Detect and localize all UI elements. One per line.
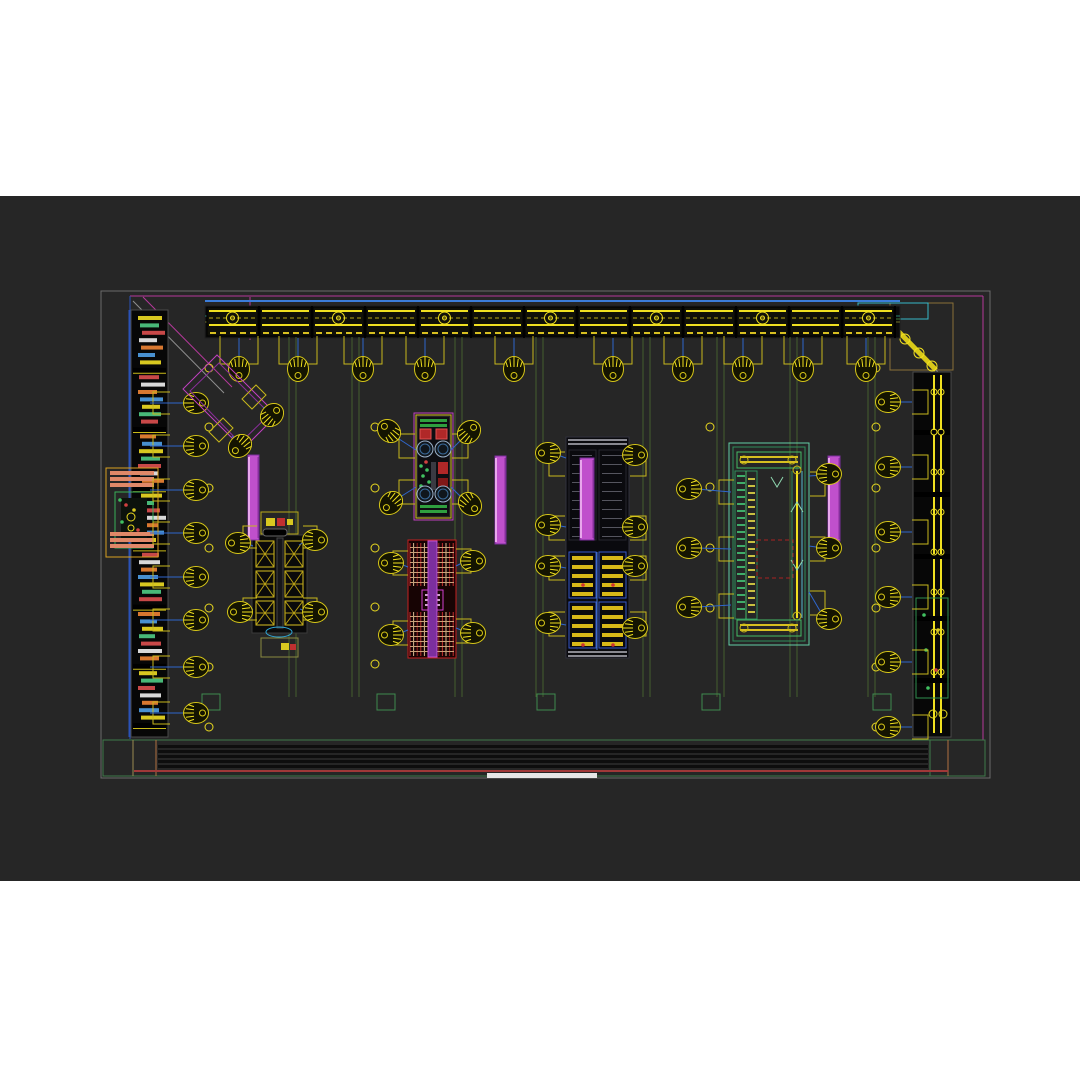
- shelf-bay: [538, 332, 544, 334]
- table: [417, 486, 433, 502]
- shelf-merchandise: [141, 383, 165, 387]
- shelf-bay: [409, 332, 415, 334]
- shelf-merchandise: [139, 597, 162, 601]
- spotlight-fixture: [184, 480, 209, 501]
- shelf-bay: [528, 332, 534, 334]
- spotlight-fixture: [817, 464, 842, 485]
- island-stock: [748, 527, 755, 529]
- shelf-bay: [250, 332, 256, 334]
- spotlight-fixture: [623, 517, 648, 538]
- shelf-bay: [621, 332, 627, 334]
- shelf-bay: [846, 332, 852, 334]
- island-stock: [748, 611, 755, 613]
- display-detail: [277, 518, 285, 526]
- shelf-merchandise: [140, 693, 161, 697]
- spotlight-fixture: [623, 618, 648, 639]
- entrance-mat: [158, 755, 928, 758]
- shelf-merchandise: [142, 590, 161, 594]
- shelf-bay: [263, 332, 269, 334]
- island-stock: [748, 569, 755, 571]
- island-stock: [737, 482, 745, 484]
- island-stock: [748, 478, 755, 480]
- spotlight-fixture: [677, 538, 702, 559]
- entrance-mat: [158, 750, 928, 753]
- shelf-bay: [581, 332, 587, 334]
- display-chips: [110, 477, 154, 481]
- shelf-merchandise: [142, 442, 162, 446]
- shelf-merchandise: [140, 323, 159, 327]
- shelf-merchandise: [138, 464, 161, 468]
- gondola-shelf-line: [602, 518, 622, 519]
- island-stock: [737, 517, 745, 519]
- island-stock: [737, 552, 745, 554]
- spotlight-fixture: [415, 357, 436, 382]
- display-detail: [581, 583, 585, 587]
- shelf-bay: [462, 332, 468, 334]
- display-chips: [110, 538, 154, 542]
- shelf-merchandise: [138, 612, 160, 616]
- spotlight-fixture: [876, 457, 901, 478]
- screenshot-page: [0, 0, 1080, 1080]
- island-stock: [737, 608, 745, 610]
- shelf-merchandise: [133, 427, 166, 432]
- shelf-bay: [654, 332, 660, 334]
- gondola-stock: [602, 615, 623, 619]
- spotlight-fixture: [303, 602, 328, 623]
- shelf-bay: [389, 332, 395, 334]
- display-detail: [436, 429, 447, 439]
- shelf-merchandise: [138, 686, 155, 690]
- display-detail: [419, 464, 423, 468]
- spotlight-fixture: [876, 522, 901, 543]
- display-detail: [266, 518, 275, 526]
- spotlight-fixture: [379, 625, 404, 646]
- shelf-bay: [856, 332, 862, 334]
- island-stock: [748, 541, 755, 543]
- island-stock: [748, 520, 755, 522]
- gondola-spine: [277, 538, 283, 628]
- shelf-bay: [707, 332, 713, 334]
- island-stock: [737, 489, 745, 491]
- island-stock: [737, 545, 745, 547]
- shelf-merchandise: [139, 708, 159, 712]
- shelf-bay: [687, 332, 693, 334]
- gondola-cap: [568, 443, 627, 445]
- island-stock: [748, 597, 755, 599]
- gondola-shelf-line: [602, 455, 622, 456]
- shelf-bay: [793, 332, 799, 334]
- spotlight-fixture: [876, 717, 901, 738]
- shelf-merchandise: [140, 397, 163, 401]
- gondola-cap: [568, 655, 627, 657]
- gondola-stock: [572, 615, 593, 619]
- spotlight-fixture: [536, 443, 561, 464]
- shelf-bay: [770, 332, 776, 334]
- gondola-spine: [428, 541, 437, 657]
- shelf-merchandise: [141, 642, 161, 646]
- display-detail: [420, 510, 447, 513]
- spotlight-fixture: [876, 587, 901, 608]
- island-stock: [737, 475, 745, 477]
- shelf-bay: [336, 332, 342, 334]
- table: [435, 486, 451, 502]
- entrance-mat: [158, 760, 928, 763]
- display-chips: [110, 471, 154, 475]
- island-stock: [748, 513, 755, 515]
- island-stock: [748, 604, 755, 606]
- gondola-stock: [602, 633, 623, 637]
- island-stock: [737, 524, 745, 526]
- display-detail: [425, 468, 429, 472]
- gondola-shelf-line: [602, 491, 622, 492]
- shelf-bay: [644, 332, 650, 334]
- island-stock: [748, 562, 755, 564]
- shelf-bay: [611, 332, 617, 334]
- island-stock: [737, 496, 745, 498]
- island-stock: [748, 492, 755, 494]
- spotlight-fixture: [379, 553, 404, 574]
- island-stock: [737, 573, 745, 575]
- shelf-bay: [303, 332, 309, 334]
- shelf-bay: [591, 332, 597, 334]
- spotlight-fixture: [673, 357, 694, 382]
- display-detail: [120, 520, 124, 524]
- island-stock: [737, 566, 745, 568]
- spotlight-fixture: [536, 613, 561, 634]
- display-detail: [281, 643, 289, 650]
- shelf-bay: [750, 332, 756, 334]
- gondola-stock: [602, 606, 623, 610]
- floorplan-viewport[interactable]: [0, 0, 1080, 1080]
- shelf-bay: [697, 332, 703, 334]
- display-detail: [611, 583, 615, 587]
- shelf-bay: [293, 332, 299, 334]
- shelf-bay: [432, 332, 438, 334]
- display-detail: [936, 628, 940, 632]
- shelf-bay: [515, 332, 521, 334]
- spotlight-fixture: [228, 602, 253, 623]
- spotlight-fixture: [623, 556, 648, 577]
- shelf-merchandise: [139, 560, 160, 564]
- gondola-shelf-line: [602, 536, 622, 537]
- spotlight-fixture: [876, 652, 901, 673]
- shelf-bay: [780, 332, 786, 334]
- spotlight-fixture: [856, 357, 877, 382]
- island-stock: [748, 506, 755, 508]
- shelf-merchandise: [141, 346, 163, 350]
- spotlight-fixture: [184, 567, 209, 588]
- spotlight-fixture: [353, 357, 374, 382]
- shelf-bay: [399, 332, 405, 334]
- spotlight-fixture: [677, 479, 702, 500]
- shelf-bay: [495, 332, 501, 334]
- shelf-bay: [369, 332, 375, 334]
- shelf-bay: [727, 332, 733, 334]
- spotlight-fixture: [817, 609, 842, 630]
- spotlight-fixture: [288, 357, 309, 382]
- shelf-bay: [876, 332, 882, 334]
- shelf-merchandise: [139, 634, 155, 638]
- shelf-merchandise: [142, 331, 165, 335]
- gondola-stock: [572, 556, 593, 560]
- island-stock: [737, 510, 745, 512]
- display-detail: [581, 643, 585, 647]
- island-stock: [748, 534, 755, 536]
- gondola-stock: [572, 574, 593, 578]
- shelf-bay: [823, 332, 829, 334]
- gondola-stock: [602, 624, 623, 628]
- island-stock: [748, 499, 755, 501]
- shelf-bay: [674, 332, 680, 334]
- gondola-shelf-line: [602, 464, 622, 465]
- shelf-bay: [210, 332, 216, 334]
- gondola-shelf-line: [602, 482, 622, 483]
- shelf-bay: [558, 332, 564, 334]
- shelf-merchandise: [140, 360, 161, 364]
- shelf-bay: [356, 332, 362, 334]
- shelf-bay: [760, 332, 766, 334]
- display-detail: [438, 462, 448, 474]
- island-stock: [748, 590, 755, 592]
- shelf-merchandise: [142, 405, 160, 409]
- island-stock: [737, 531, 745, 533]
- island-stock: [737, 580, 745, 582]
- entrance-mat: [158, 765, 928, 768]
- shelf-merchandise: [133, 368, 166, 373]
- spotlight-fixture: [623, 445, 648, 466]
- shelf-bay: [833, 332, 839, 334]
- shelf-bay: [664, 332, 670, 334]
- display-detail: [424, 460, 428, 464]
- gondola-cap: [568, 439, 627, 441]
- display-detail: [118, 498, 122, 502]
- spotlight-fixture: [504, 357, 525, 382]
- display-detail: [290, 644, 296, 650]
- shelf-bay: [866, 332, 872, 334]
- display-detail: [420, 429, 431, 439]
- spotlight-fixture: [461, 623, 486, 644]
- shelf-merchandise: [133, 664, 166, 669]
- gondola-stock: [602, 556, 623, 560]
- shelf-bay: [326, 332, 332, 334]
- spotlight-fixture: [184, 610, 209, 631]
- shelf-merchandise: [141, 494, 162, 498]
- gondola-stock: [572, 592, 593, 596]
- table-divider: [431, 462, 436, 490]
- display-detail: [926, 686, 930, 690]
- shelf-bay: [230, 332, 236, 334]
- threshold-white: [487, 773, 597, 778]
- island-stock: [748, 555, 755, 557]
- shelf-merchandise: [141, 679, 163, 683]
- shelf-bay: [220, 332, 226, 334]
- spotlight-fixture: [184, 523, 209, 544]
- shelf-merchandise: [139, 375, 159, 379]
- spotlight-fixture: [677, 597, 702, 618]
- magenta-display-bar: [580, 458, 594, 540]
- spotlight-fixture: [876, 392, 901, 413]
- display-detail: [287, 519, 293, 525]
- shelf-merchandise: [139, 671, 157, 675]
- island-stock: [737, 601, 745, 603]
- spotlight-fixture: [184, 703, 209, 724]
- table: [435, 441, 451, 457]
- island-stock: [737, 594, 745, 596]
- gondola-cap: [568, 651, 627, 653]
- spotlight-fixture: [793, 357, 814, 382]
- spotlight-fixture: [461, 551, 486, 572]
- gondola-shelf-line: [602, 500, 622, 501]
- shelf-merchandise: [141, 568, 157, 572]
- spotlight-fixture: [536, 556, 561, 577]
- display-chips: [110, 544, 154, 548]
- display-detail: [420, 505, 447, 508]
- shelf-bay: [379, 332, 385, 334]
- shelf-merchandise: [138, 353, 155, 357]
- display-chips: [110, 532, 154, 536]
- gondola-shelf-line: [602, 473, 622, 474]
- gondola-shelf-line: [602, 509, 622, 510]
- display-detail: [420, 424, 447, 427]
- entrance-mat: [158, 745, 928, 748]
- gondola-stock: [602, 592, 623, 596]
- display-detail: [420, 419, 447, 422]
- shelf-bay: [475, 332, 481, 334]
- island-stock: [748, 583, 755, 585]
- shelf-bay: [813, 332, 819, 334]
- display-detail: [421, 474, 425, 478]
- display-detail: [934, 668, 938, 672]
- gondola-shelf-line: [602, 527, 622, 528]
- shelf-bay: [803, 332, 809, 334]
- gondola-stock: [572, 565, 593, 569]
- shelf-merchandise: [141, 420, 158, 424]
- shelf-bay: [548, 332, 554, 334]
- island-stock: [737, 538, 745, 540]
- shelf-divider: [914, 492, 950, 497]
- shelf-bay: [886, 332, 892, 334]
- shelf-merchandise: [139, 449, 163, 453]
- island-stock: [737, 587, 745, 589]
- spotlight-fixture: [184, 657, 209, 678]
- shelf-bay: [273, 332, 279, 334]
- shelf-bay: [346, 332, 352, 334]
- shelf-bay: [717, 332, 723, 334]
- spotlight-fixture: [603, 357, 624, 382]
- shelf-merchandise: [138, 649, 162, 653]
- gondola-stock: [572, 633, 593, 637]
- shelf-bay: [452, 332, 458, 334]
- shelf-divider: [914, 678, 950, 683]
- display-detail: [132, 508, 136, 512]
- island-stock: [737, 559, 745, 561]
- spotlight-fixture: [536, 515, 561, 536]
- spotlight-fixture: [184, 436, 209, 457]
- shelf-bay: [601, 332, 607, 334]
- spotlight-fixture: [733, 357, 754, 382]
- shelf-bay: [568, 332, 574, 334]
- shelf-bay: [422, 332, 428, 334]
- display-detail: [136, 528, 140, 532]
- display-detail: [611, 643, 615, 647]
- island-stock: [748, 485, 755, 487]
- display-detail: [922, 613, 926, 617]
- shelf-bay: [634, 332, 640, 334]
- gondola-stock: [572, 624, 593, 628]
- shelf-bay: [740, 332, 746, 334]
- shelf-bay: [316, 332, 322, 334]
- shelf-divider: [914, 616, 950, 621]
- shelf-merchandise: [140, 582, 164, 586]
- shelf-bay: [505, 332, 511, 334]
- shelf-bay: [442, 332, 448, 334]
- shelf-bay: [485, 332, 491, 334]
- island-stock: [748, 548, 755, 550]
- display-chips: [110, 483, 154, 487]
- island-stock: [737, 503, 745, 505]
- island-stock: [748, 576, 755, 578]
- shelf-merchandise: [142, 553, 159, 557]
- shelf-merchandise: [139, 338, 157, 342]
- spotlight-fixture: [303, 530, 328, 551]
- shelf-bay: [283, 332, 289, 334]
- table: [417, 441, 433, 457]
- shelf-merchandise: [138, 316, 162, 320]
- shelf-merchandise: [140, 656, 159, 660]
- shelf-bay: [894, 306, 896, 338]
- gondola-shelf-line: [572, 455, 592, 456]
- shelf-merchandise: [142, 701, 158, 705]
- gondola-stock: [572, 606, 593, 610]
- display-detail: [124, 503, 128, 507]
- gondola-cap: [263, 529, 287, 536]
- gondola-stock: [602, 574, 623, 578]
- spotlight-fixture: [817, 538, 842, 559]
- display-detail: [427, 480, 431, 484]
- gondola-stock: [602, 565, 623, 569]
- shelf-bay: [240, 332, 246, 334]
- spotlight-fixture: [226, 533, 251, 554]
